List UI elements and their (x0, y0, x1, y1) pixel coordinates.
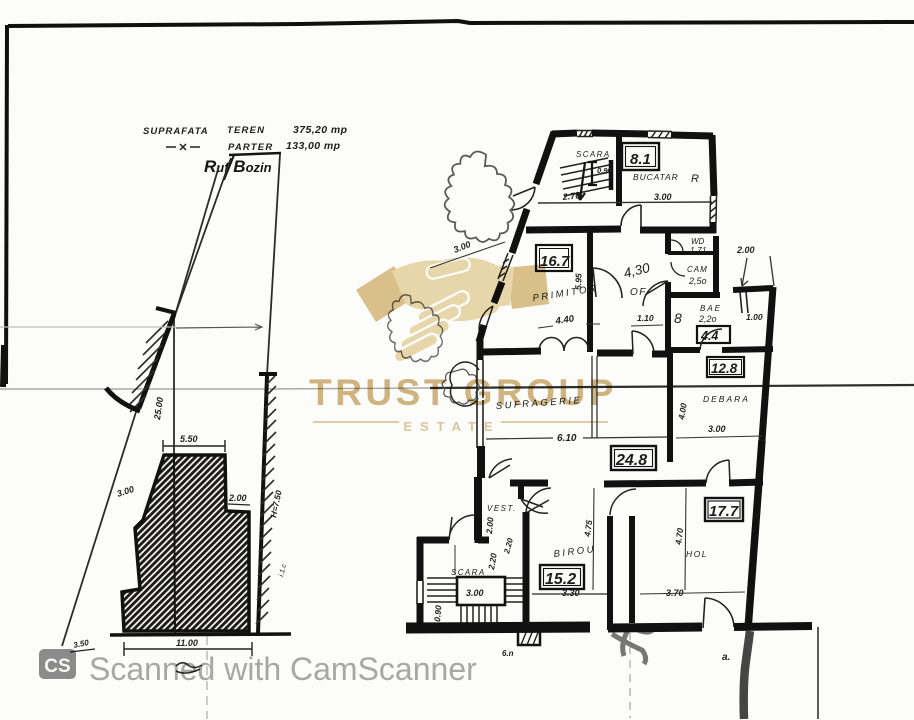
svg-text:CAM: CAM (687, 265, 708, 274)
svg-text:PARTER: PARTER (228, 142, 273, 153)
svg-text:TEREN: TEREN (227, 125, 265, 136)
svg-text:SCARA: SCARA (451, 568, 486, 577)
svg-text:BAE: BAE (700, 304, 722, 313)
svg-text:2.70: 2.70 (561, 190, 580, 202)
svg-text:R: R (691, 173, 699, 185)
svg-text:0.90: 0.90 (597, 166, 612, 175)
svg-text:3.00: 3.00 (466, 588, 484, 598)
svg-text:24.8: 24.8 (615, 452, 647, 469)
svg-text:8.1: 8.1 (630, 151, 651, 168)
svg-text:17.7: 17.7 (709, 503, 739, 520)
svg-text:2.00: 2.00 (228, 493, 247, 503)
svg-text:DEBARA: DEBARA (703, 394, 750, 404)
svg-text:5.50: 5.50 (180, 434, 198, 444)
svg-text:3.00: 3.00 (654, 192, 672, 202)
svg-text:SUPRAFATA: SUPRAFATA (143, 126, 209, 137)
svg-text:BUCATAR: BUCATAR (633, 172, 679, 182)
svg-text:0.90: 0.90 (432, 605, 443, 623)
svg-text:5.95: 5.95 (573, 273, 584, 290)
svg-text:1.10: 1.10 (637, 313, 654, 323)
svg-text:Ruf Bozin: Ruf Bozin (204, 157, 272, 176)
svg-text:HOL: HOL (686, 549, 708, 559)
svg-text:12.8: 12.8 (711, 361, 738, 376)
svg-text:6.n: 6.n (502, 649, 514, 658)
svg-text:2.00: 2.00 (484, 517, 496, 536)
svg-text:375,20 mp: 375,20 mp (293, 124, 348, 136)
svg-text:2.00: 2.00 (736, 245, 755, 255)
svg-text:VEST.: VEST. (487, 504, 517, 513)
svg-text:ESTATE: ESTATE (403, 419, 500, 434)
svg-text:6.10: 6.10 (557, 433, 577, 444)
svg-text:Scanned with CamScanner: Scanned with CamScanner (89, 651, 477, 687)
svg-text:3.00: 3.00 (708, 424, 726, 434)
svg-text:CS: CS (44, 656, 70, 677)
svg-text:1.00: 1.00 (746, 312, 763, 322)
svg-text:2,2o: 2,2o (698, 314, 717, 324)
svg-text:3.30: 3.30 (562, 588, 580, 598)
svg-text:SCARA: SCARA (576, 150, 611, 159)
svg-text:8: 8 (674, 310, 682, 326)
svg-text:a.: a. (722, 652, 730, 663)
svg-text:2,5o: 2,5o (688, 276, 707, 286)
svg-text:11.00: 11.00 (176, 638, 198, 648)
svg-text:1,71: 1,71 (690, 245, 707, 255)
svg-text:TRUST GROUP: TRUST GROUP (309, 372, 617, 413)
svg-text:15.2: 15.2 (545, 571, 576, 588)
svg-text:133,00 mp: 133,00 mp (286, 140, 341, 152)
